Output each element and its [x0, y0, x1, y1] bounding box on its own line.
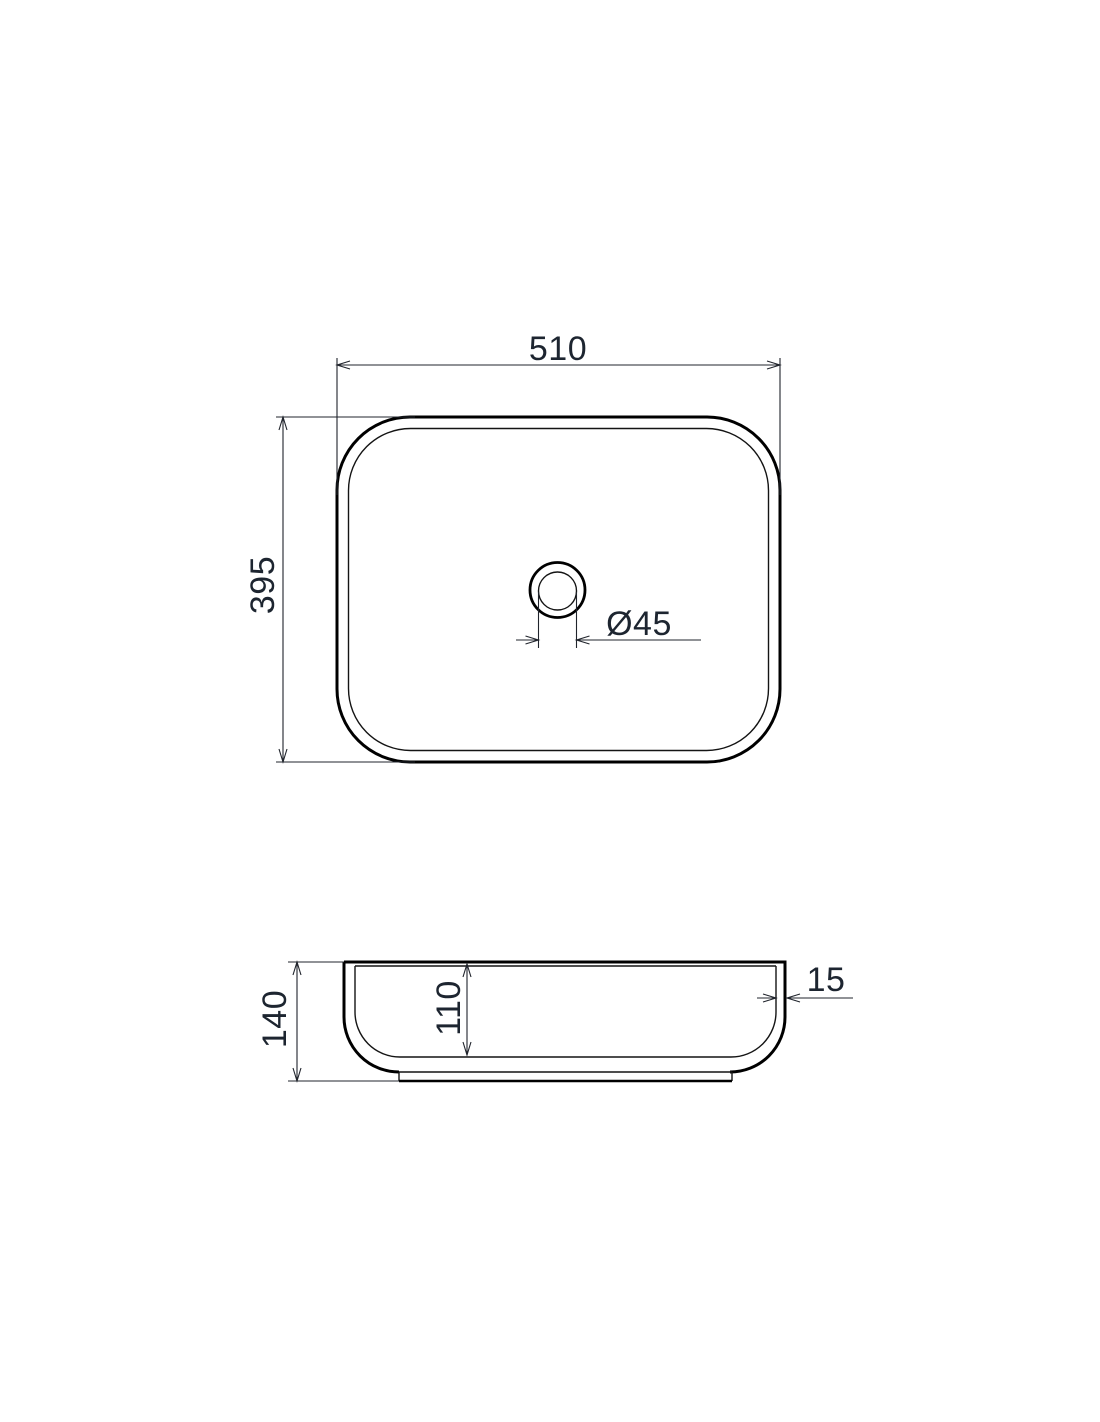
basin-outer-outline	[337, 417, 780, 762]
basin-profile-outer-right	[344, 962, 785, 1072]
dimension-label-height: 140	[256, 990, 294, 1048]
dimension-basin-depth: 110	[430, 964, 471, 1055]
basin-inner-outline	[349, 429, 769, 751]
side-view: 140 110 15	[256, 961, 853, 1081]
drawing-sheet: 510 395 Ø45	[0, 0, 1100, 1422]
dimension-width: 510	[337, 330, 780, 495]
dimension-drain-diameter: Ø45	[516, 592, 701, 648]
dimension-height: 140	[256, 962, 399, 1081]
top-view: 510 395 Ø45	[244, 330, 780, 762]
dimension-rim-thickness: 15	[757, 961, 853, 1002]
dimension-label-rim-thickness: 15	[807, 961, 846, 999]
basin-foot	[399, 1072, 732, 1081]
dimension-label-depth: 395	[244, 556, 282, 614]
technical-drawing: 510 395 Ø45	[0, 0, 1100, 1422]
dimension-label-basin-depth: 110	[430, 980, 468, 1036]
basin-profile-inner	[355, 966, 776, 1057]
dimension-depth: 395	[244, 417, 415, 762]
drain-inner-circle	[539, 572, 577, 610]
dimension-label-drain: Ø45	[606, 605, 672, 643]
dimension-label-width: 510	[529, 330, 587, 368]
